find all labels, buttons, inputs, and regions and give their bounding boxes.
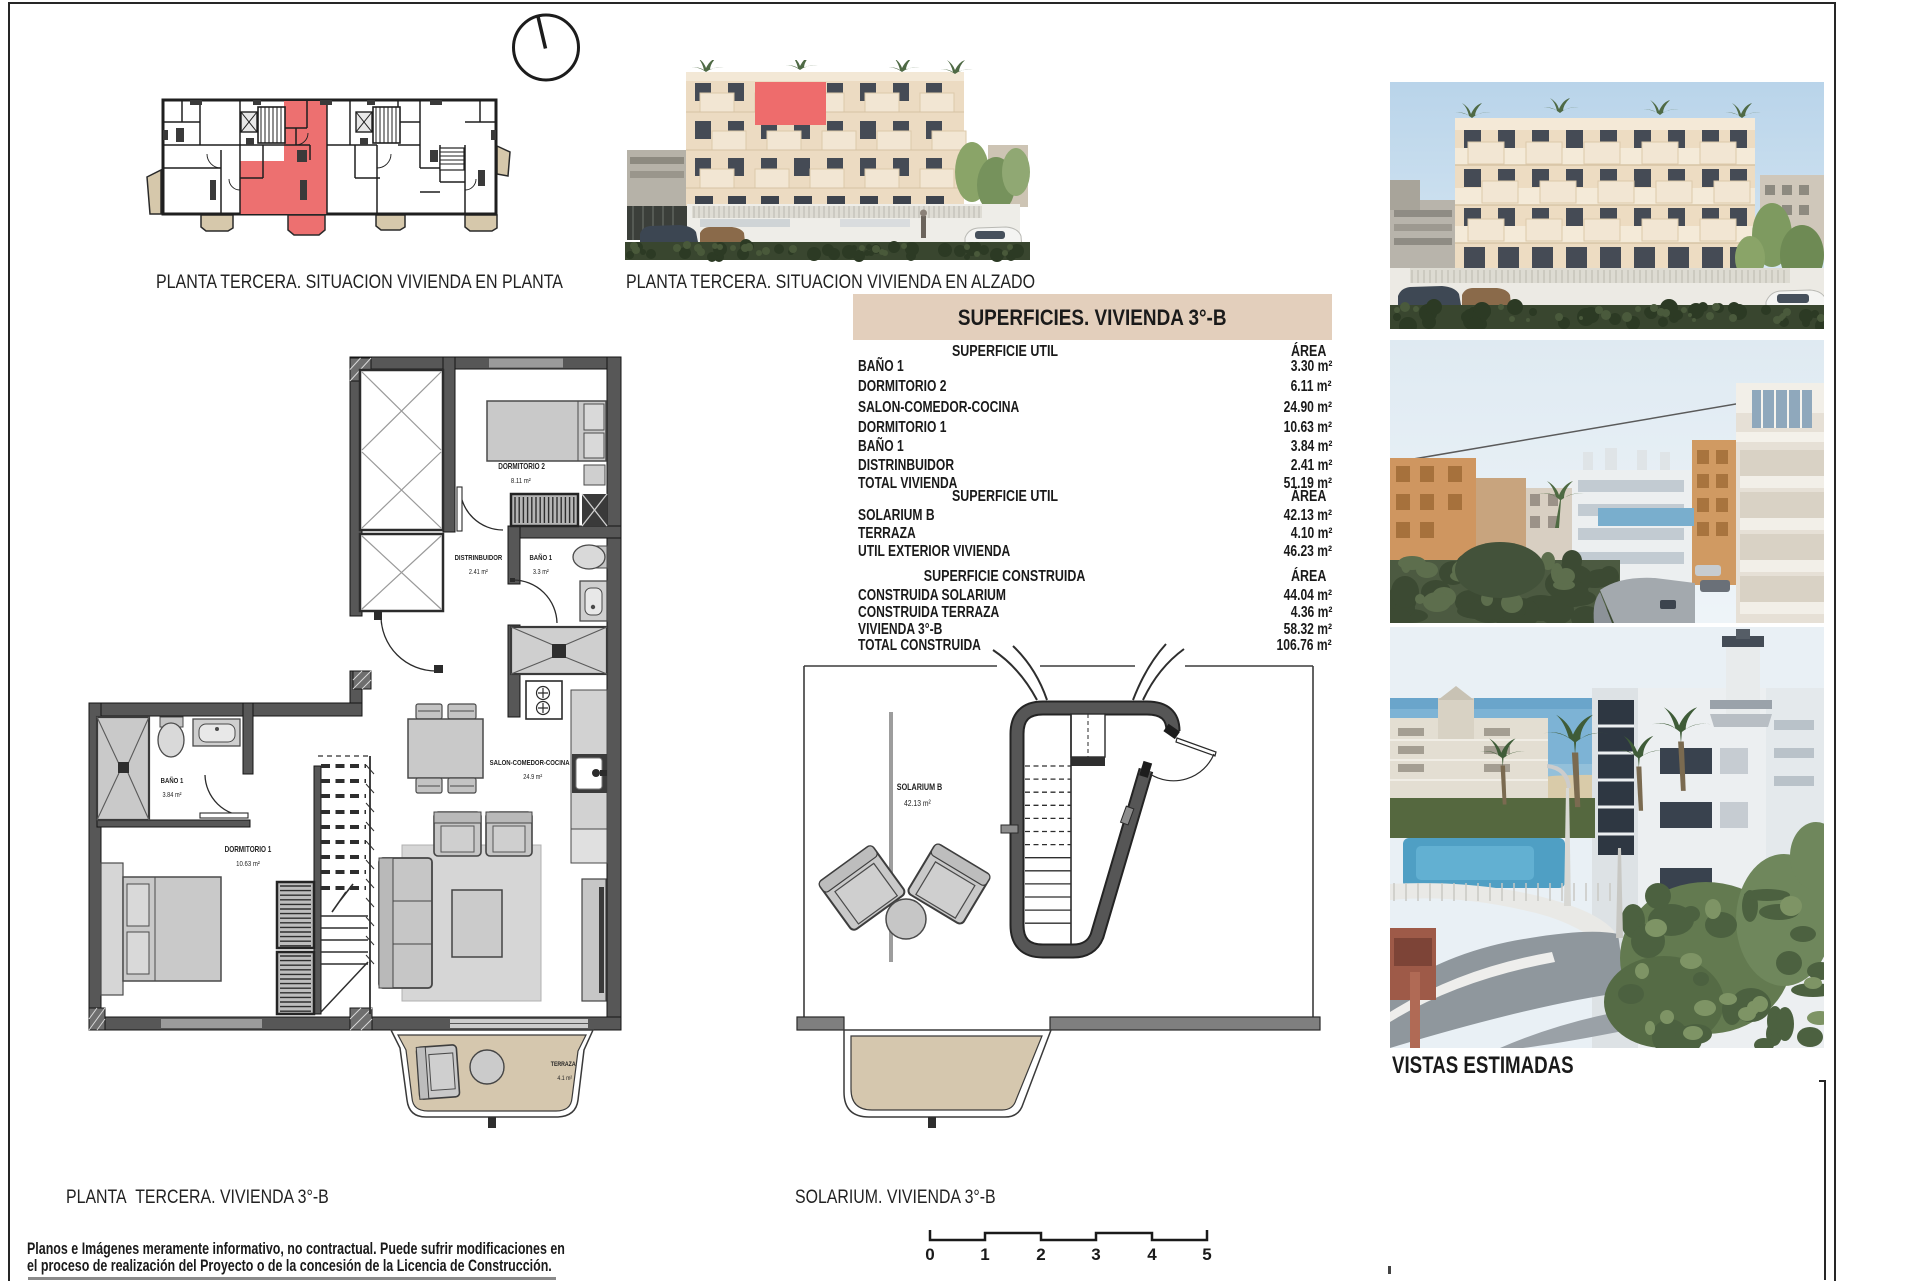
svg-text:8.11 m²: 8.11 m² bbox=[511, 477, 532, 485]
svg-text:4: 4 bbox=[1147, 1245, 1157, 1264]
svg-text:3: 3 bbox=[1091, 1245, 1100, 1264]
svg-text:BAÑO 1: BAÑO 1 bbox=[161, 775, 184, 785]
svg-text:3.3 m²: 3.3 m² bbox=[533, 568, 549, 576]
svg-text:5: 5 bbox=[1202, 1245, 1211, 1264]
svg-text:2.41 m²: 2.41 m² bbox=[469, 568, 488, 576]
svg-text:DISTRINBUIDOR: DISTRINBUIDOR bbox=[455, 554, 503, 562]
svg-text:1: 1 bbox=[980, 1245, 989, 1264]
svg-text:24.9 m²: 24.9 m² bbox=[523, 773, 542, 781]
svg-text:2: 2 bbox=[1036, 1245, 1045, 1264]
svg-text:DORMITORIO 1: DORMITORIO 1 bbox=[225, 844, 272, 854]
svg-text:0: 0 bbox=[925, 1245, 934, 1264]
svg-text:TERRAZA: TERRAZA bbox=[551, 1062, 576, 1069]
svg-text:DORMITORIO 2: DORMITORIO 2 bbox=[498, 461, 545, 471]
svg-text:10.63 m²: 10.63 m² bbox=[236, 860, 260, 868]
svg-text:SALON-COMEDOR-COCINA: SALON-COMEDOR-COCINA bbox=[490, 759, 570, 767]
svg-text:42.13 m²: 42.13 m² bbox=[904, 798, 931, 808]
svg-text:4.1 m²: 4.1 m² bbox=[557, 1076, 572, 1083]
svg-text:SOLARIUM B: SOLARIUM B bbox=[897, 782, 943, 792]
svg-text:BAÑO 1: BAÑO 1 bbox=[529, 552, 552, 562]
svg-text:3.84 m²: 3.84 m² bbox=[163, 791, 182, 799]
